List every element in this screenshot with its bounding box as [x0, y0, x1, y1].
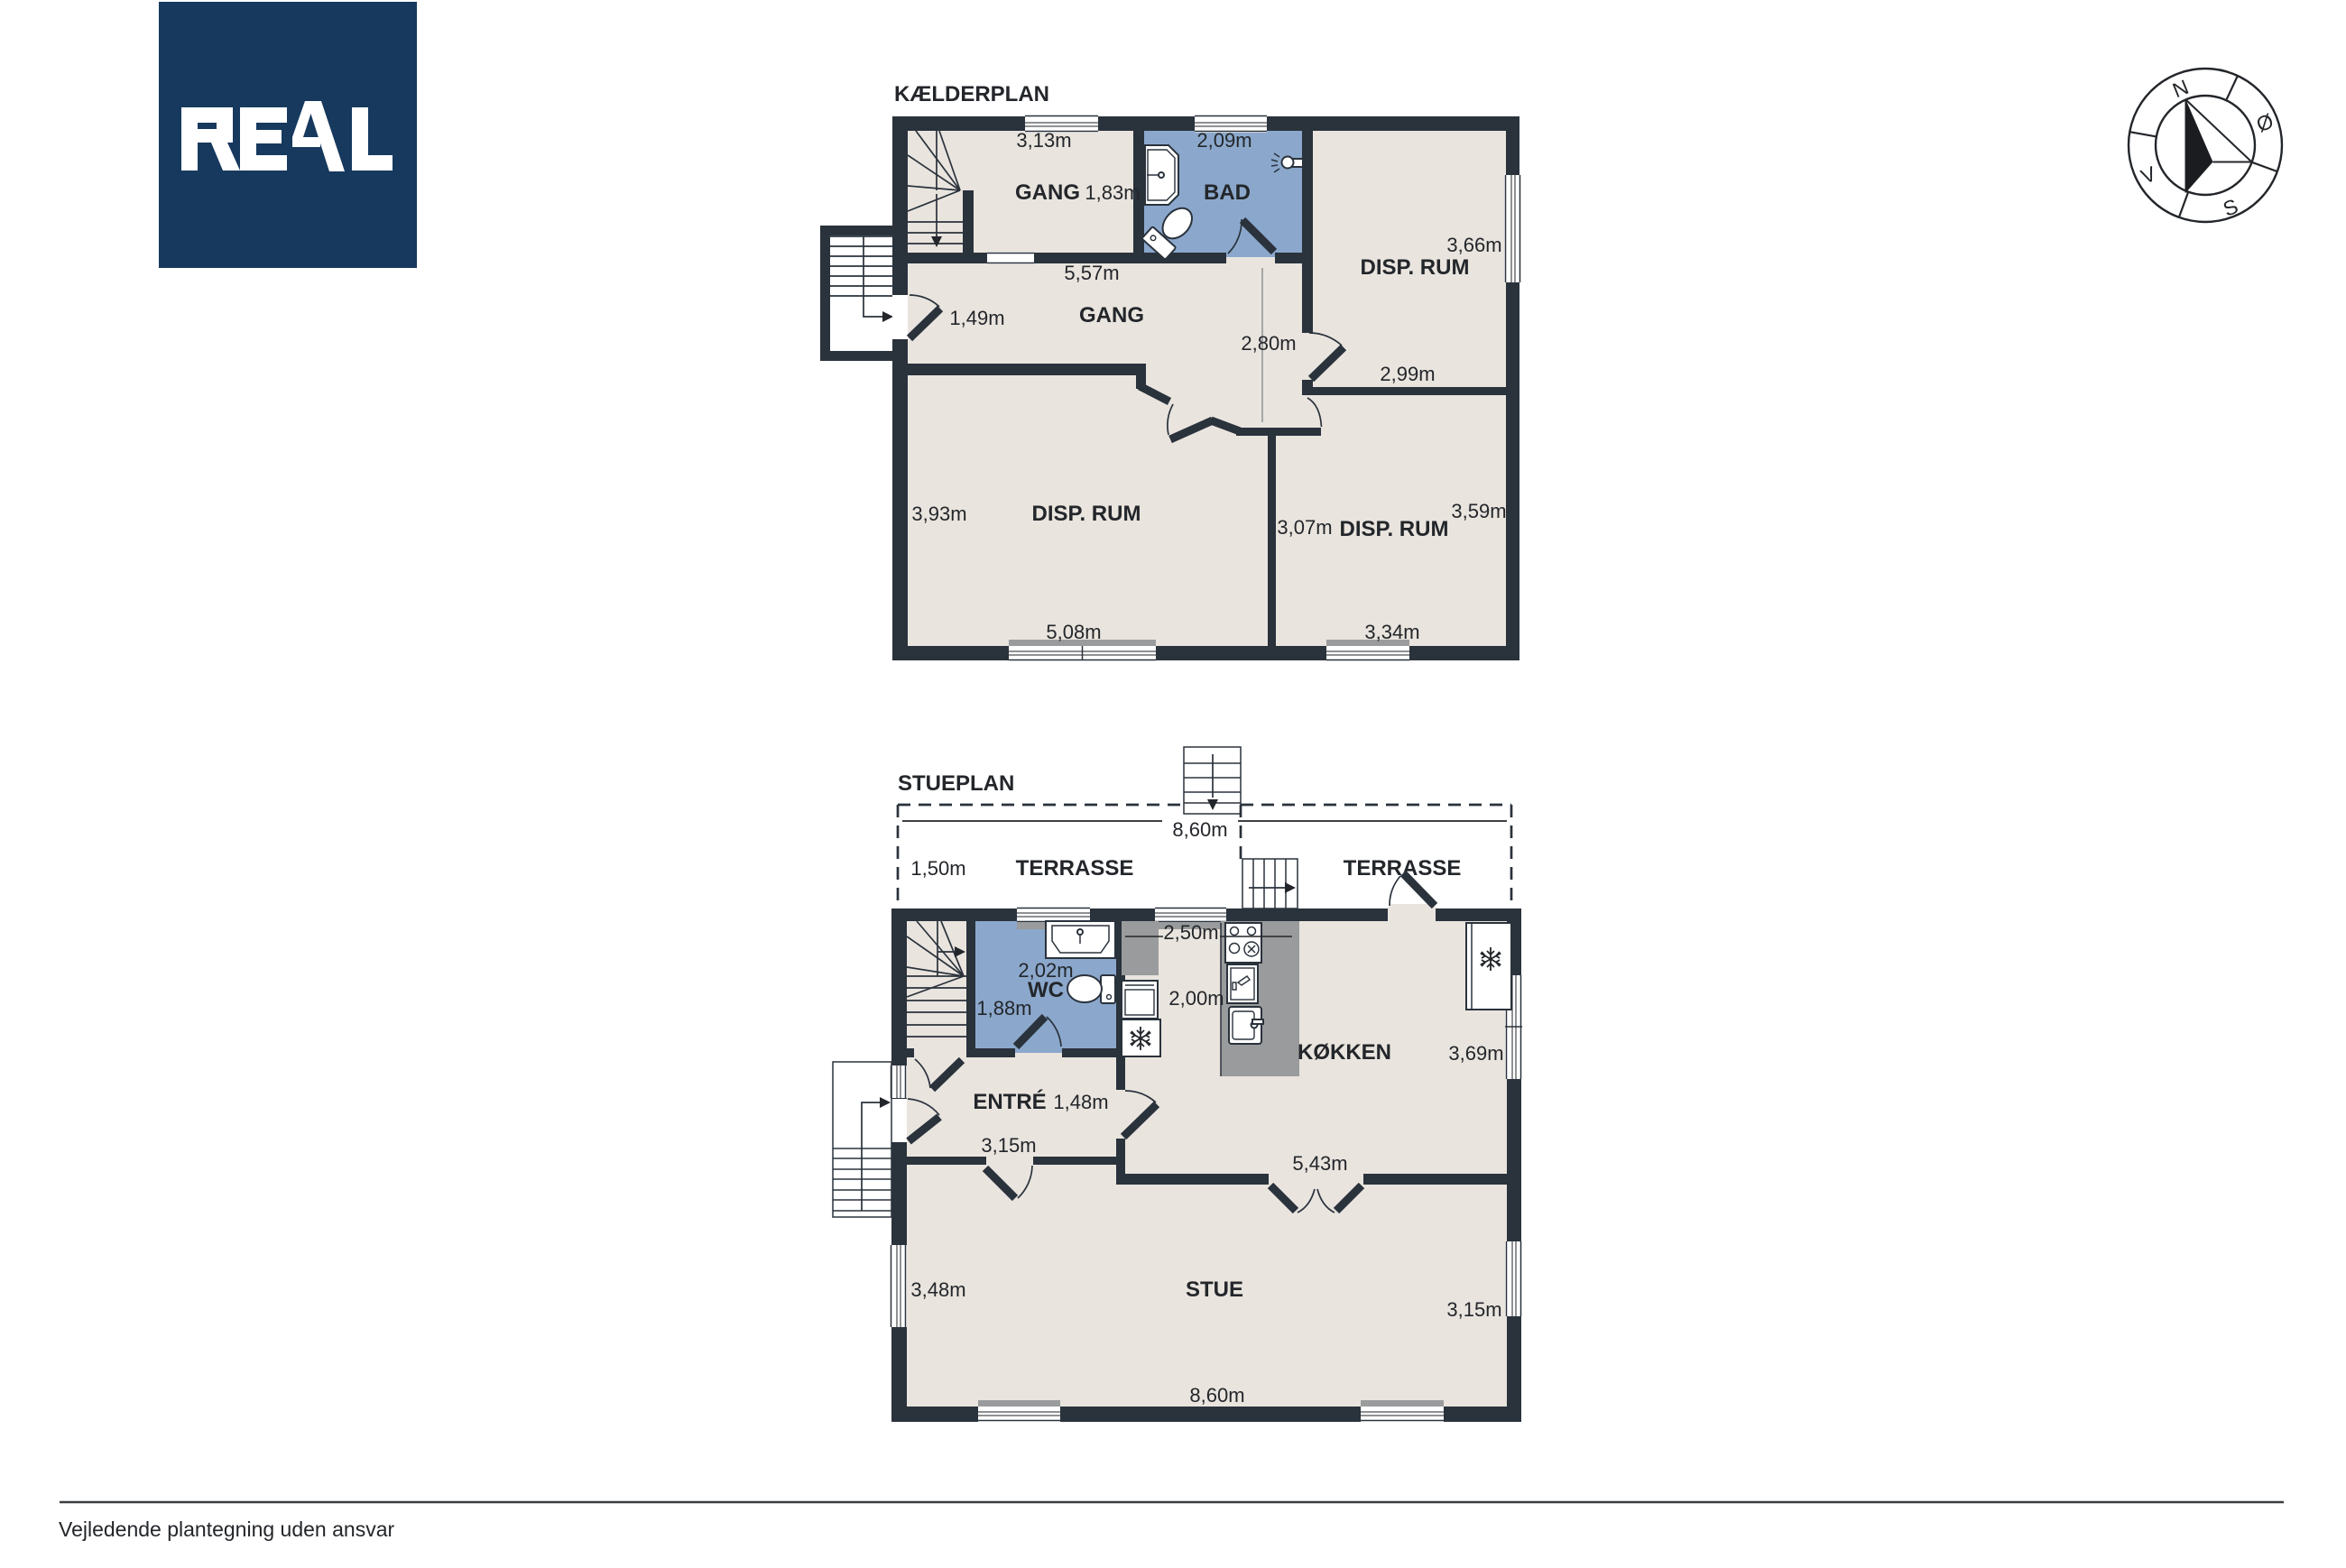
svg-text:3,66m: 3,66m: [1446, 234, 1501, 256]
svg-text:1,88m: 1,88m: [976, 997, 1031, 1019]
svg-text:3,69m: 3,69m: [1448, 1042, 1503, 1065]
svg-text:8,60m: 8,60m: [1189, 1384, 1244, 1407]
svg-text:5,08m: 5,08m: [1046, 621, 1101, 643]
svg-text:STUEPLAN: STUEPLAN: [898, 771, 1014, 796]
svg-text:3,15m: 3,15m: [981, 1134, 1036, 1157]
svg-text:5,43m: 5,43m: [1292, 1152, 1347, 1175]
svg-text:STUE: STUE: [1186, 1277, 1243, 1302]
svg-text:3,93m: 3,93m: [911, 503, 966, 525]
svg-text:BAD: BAD: [1204, 180, 1251, 205]
svg-text:2,80m: 2,80m: [1241, 332, 1296, 355]
svg-text:KØKKEN: KØKKEN: [1298, 1040, 1391, 1065]
svg-text:3,59m: 3,59m: [1451, 500, 1506, 522]
svg-text:DISP. RUM: DISP. RUM: [1032, 502, 1141, 526]
svg-text:1,83m: 1,83m: [1085, 181, 1140, 204]
svg-text:3,13m: 3,13m: [1016, 129, 1071, 152]
svg-text:2,00m: 2,00m: [1168, 987, 1224, 1010]
svg-text:1,48m: 1,48m: [1053, 1091, 1108, 1113]
svg-text:DISP. RUM: DISP. RUM: [1340, 517, 1449, 541]
svg-text:3,07m: 3,07m: [1277, 516, 1332, 539]
svg-text:2,99m: 2,99m: [1380, 363, 1435, 385]
svg-text:2,09m: 2,09m: [1196, 129, 1252, 152]
svg-text:Vejledende plantegning uden an: Vejledende plantegning uden ansvar: [59, 1517, 394, 1541]
svg-text:8,60m: 8,60m: [1172, 818, 1227, 841]
svg-text:ENTRÉ: ENTRÉ: [973, 1089, 1046, 1114]
svg-text:3,34m: 3,34m: [1364, 621, 1419, 643]
svg-text:2,50m: 2,50m: [1163, 921, 1218, 944]
svg-text:TERRASSE: TERRASSE: [1016, 856, 1134, 881]
svg-text:GANG: GANG: [1079, 303, 1144, 327]
svg-text:3,48m: 3,48m: [910, 1278, 965, 1301]
svg-text:1,49m: 1,49m: [949, 307, 1004, 329]
svg-text:1,50m: 1,50m: [910, 857, 965, 880]
svg-text:3,15m: 3,15m: [1446, 1298, 1501, 1321]
svg-text:WC: WC: [1028, 978, 1064, 1002]
svg-text:KÆLDERPLAN: KÆLDERPLAN: [894, 82, 1049, 106]
svg-text:GANG: GANG: [1015, 180, 1080, 205]
svg-text:DISP. RUM: DISP. RUM: [1361, 255, 1470, 280]
svg-text:5,57m: 5,57m: [1064, 262, 1119, 284]
